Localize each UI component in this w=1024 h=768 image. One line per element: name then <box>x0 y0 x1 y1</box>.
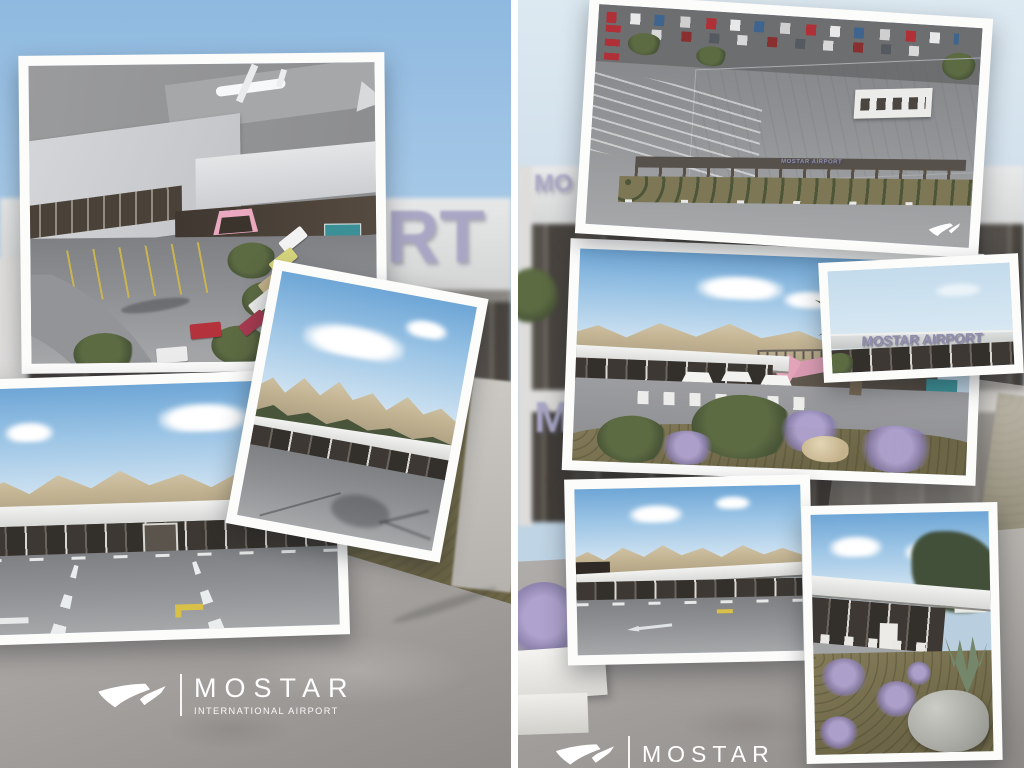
building-sign-partial: RT <box>386 200 485 274</box>
cloud <box>715 496 751 510</box>
logo-text: MOSTAR <box>642 743 775 766</box>
logo-divider <box>180 674 182 716</box>
left-collage-panel: RT <box>0 0 511 768</box>
building-sign-partial-upper: MO <box>534 172 573 196</box>
umbrella <box>682 371 714 383</box>
collage-canvas: RT <box>0 0 1024 768</box>
mostar-logo: MOSTAR INTERNATIONAL AIRPORT <box>96 674 356 716</box>
white-planter-box <box>518 693 589 736</box>
umbrella <box>721 371 753 383</box>
arrow-shaft <box>638 624 672 631</box>
cloud <box>829 535 883 558</box>
terminal-entrance-scene <box>237 271 477 551</box>
yellow-road-mark <box>717 609 733 613</box>
white-road-mark <box>0 617 28 624</box>
brand-name: MOSTAR <box>642 743 775 766</box>
brand-tagline: INTERNATIONAL AIRPORT <box>194 706 356 716</box>
cloud <box>629 504 684 523</box>
fascia-sign: MOSTAR AIRPORT <box>781 159 842 166</box>
yellow-road-mark <box>175 605 181 617</box>
cloud <box>934 282 982 297</box>
car <box>155 346 187 363</box>
rock <box>907 689 990 753</box>
penthouse-windows <box>860 97 926 111</box>
airplane <box>208 66 291 109</box>
landscape-island <box>228 242 277 278</box>
aerial-roof-scene: MOSTAR AIRPORT <box>585 4 982 248</box>
photo-aerial-roof: MOSTAR AIRPORT <box>575 0 993 258</box>
landscaping-scene <box>811 511 994 755</box>
roof-penthouse <box>854 88 933 118</box>
logo-divider <box>628 736 630 768</box>
entrance-glass <box>219 215 253 234</box>
wing-logo-icon <box>554 741 616 767</box>
parked-cars-column <box>603 24 621 60</box>
photo-airport-sign: MOSTAR AIRPORT <box>818 253 1024 383</box>
umbrella <box>760 374 792 386</box>
cloud <box>158 401 250 433</box>
facade-pillar <box>518 166 532 526</box>
wing-logo-icon <box>96 680 168 710</box>
photo-landscaping-vertical <box>801 502 1002 764</box>
cloud <box>4 422 54 443</box>
terminal-front-scene <box>574 485 803 656</box>
brand-name: MOSTAR <box>194 675 356 702</box>
airport-sign-scene: MOSTAR AIRPORT <box>828 263 1015 374</box>
photo-terminal-front-arrow <box>564 474 814 665</box>
right-collage-panel: MO MO <box>518 0 1024 768</box>
logo-text: MOSTAR INTERNATIONAL AIRPORT <box>194 675 356 716</box>
cloud <box>697 274 785 301</box>
mostar-logo: MOSTAR <box>554 736 775 768</box>
pink-entrance-accent <box>213 208 258 235</box>
